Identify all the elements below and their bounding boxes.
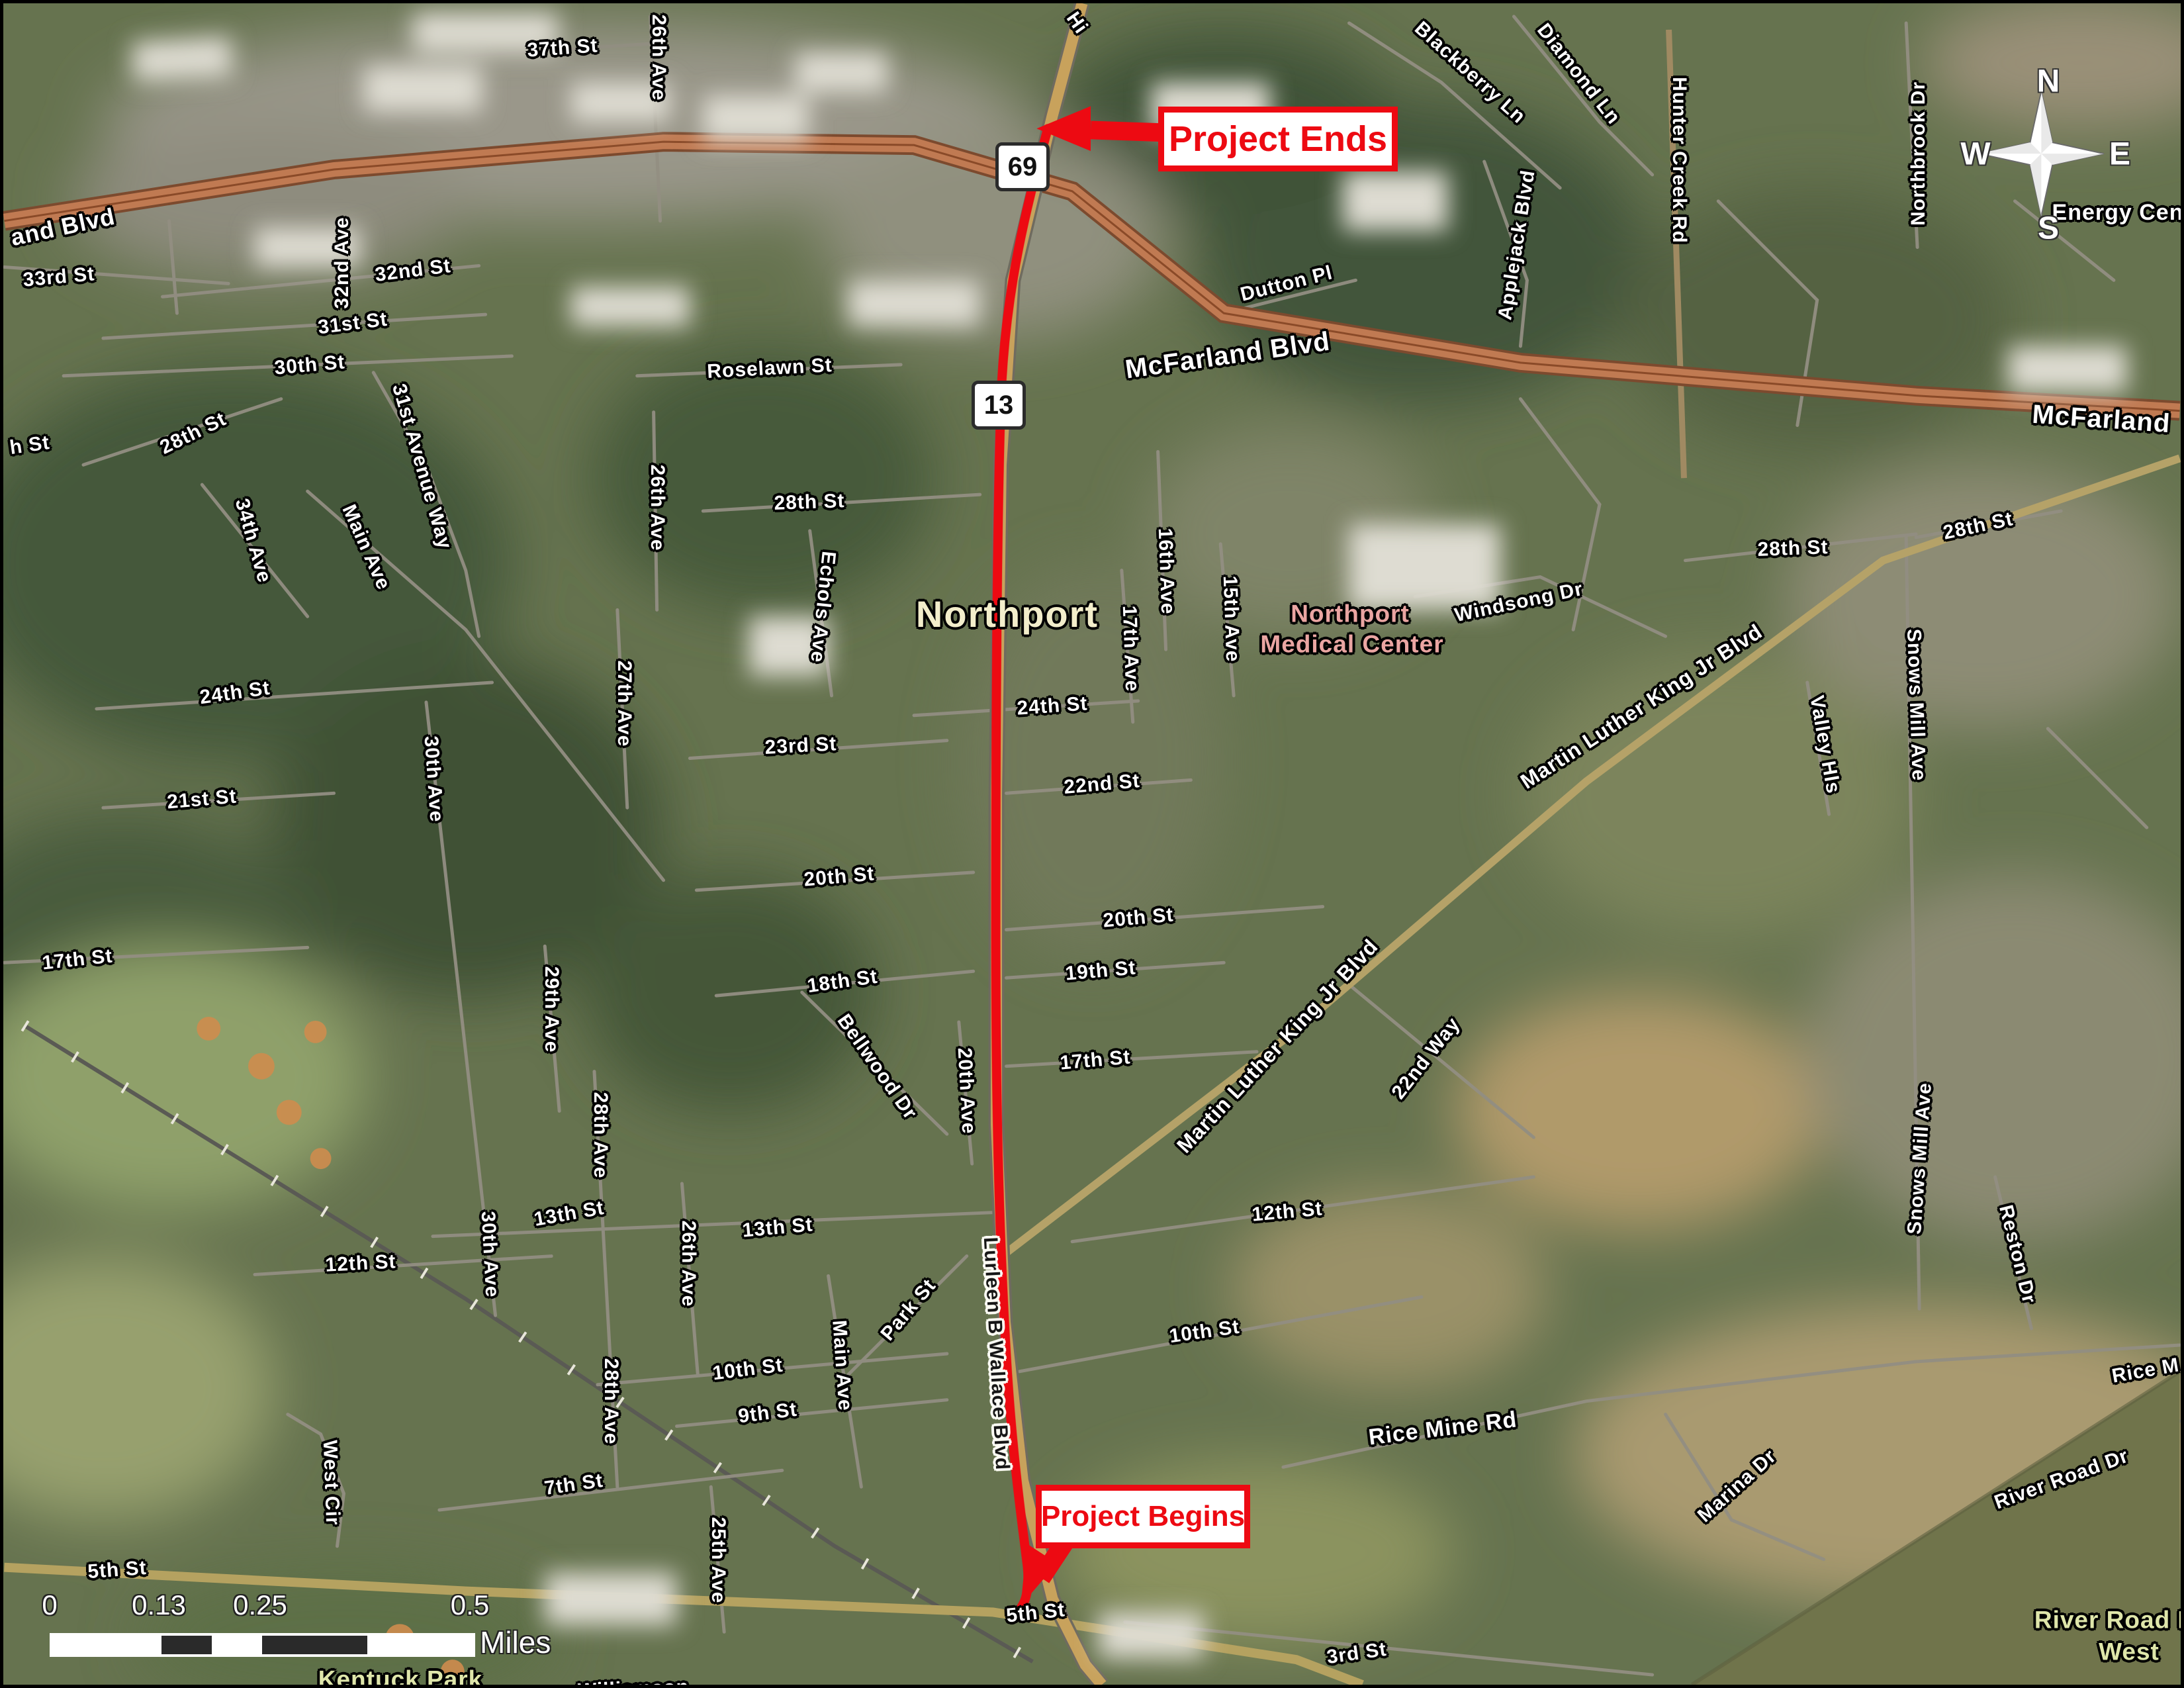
street-label-26th-ave-lower: 26th Ave xyxy=(678,1221,698,1307)
park-label-river-road-park-2: West xyxy=(2099,1640,2160,1664)
street-label-25th-ave: 25th Ave xyxy=(708,1517,728,1604)
street-label-snows-mill-ave-upper: Snows Mill Ave xyxy=(1903,628,1929,781)
street-label-15th-ave: 15th Ave xyxy=(1220,575,1243,663)
project-ends-callout: Project Ends xyxy=(1158,107,1398,171)
scale-tick-0: 0 xyxy=(42,1589,57,1621)
project-begins-callout: Project Begins xyxy=(1036,1485,1250,1548)
compass-east-label: E xyxy=(2109,136,2130,173)
street-label-24th-st-center: 24th St xyxy=(1017,694,1089,718)
street-label-30th-ave-upper: 30th Ave xyxy=(420,735,446,823)
street-label-27th-ave: 27th Ave xyxy=(614,661,634,747)
place-label-williamson-cut: Williamson xyxy=(577,1677,689,1688)
street-label-28th-ave-lower: 28th Ave xyxy=(601,1358,621,1445)
street-label-17th-ave: 17th Ave xyxy=(1119,605,1142,692)
satellite-basemap xyxy=(3,3,2181,1685)
street-label-20th-ave: 20th Ave xyxy=(954,1047,979,1135)
street-label-hunter-creek-rd: Hunter Creek Rd xyxy=(1669,77,1689,244)
street-label-30th-ave-lower: 30th Ave xyxy=(478,1211,502,1298)
scale-bar xyxy=(50,1633,475,1657)
scale-tick-0.25: 0.25 xyxy=(233,1589,287,1621)
street-label-37th-st: 37th St xyxy=(527,36,599,60)
project-begins-label: Project Begins xyxy=(1041,1500,1245,1533)
place-label-northport: Northport xyxy=(916,596,1099,633)
street-label-32nd-ave: 32nd Ave xyxy=(332,216,352,308)
street-label-26th-ave-mid: 26th Ave xyxy=(647,465,667,551)
map-viewport: 37th St26th Ave32nd Ave32nd St33rd St31s… xyxy=(0,0,2184,1688)
compass-west-label: W xyxy=(1960,136,1990,173)
poi-label-northport-medical-2: Medical Center xyxy=(1260,632,1443,657)
street-label-28th-st-center: 28th St xyxy=(774,491,845,514)
project-ends-label: Project Ends xyxy=(1169,118,1387,160)
compass-north-label: N xyxy=(2037,64,2060,100)
street-label-16th-ave: 16th Ave xyxy=(1155,528,1178,615)
street-label-28th-ave-upper: 28th Ave xyxy=(590,1092,610,1179)
street-label-5th-st-left: 5th St xyxy=(87,1558,147,1582)
park-label-river-road-park-1: River Road P xyxy=(2034,1608,2184,1632)
scale-unit-label: Miles xyxy=(480,1624,551,1660)
street-label-energy-center-cut: Energy Cen xyxy=(2052,201,2184,224)
street-label-23rd-st: 23rd St xyxy=(764,734,837,758)
street-label-28th-st-right: 28th St xyxy=(1757,538,1829,560)
street-label-west-cir: West Cir xyxy=(320,1440,342,1526)
poi-label-northport-medical-1: Northport xyxy=(1291,602,1410,626)
street-label-northbrook-dr: Northbrook Dr xyxy=(1909,81,1929,226)
street-label-26th-ave-top: 26th Ave xyxy=(649,15,668,101)
scale-tick-0.13: 0.13 xyxy=(132,1589,186,1621)
street-label-29th-ave: 29th Ave xyxy=(541,966,561,1053)
park-label-kentuck-park: Kentuck Park xyxy=(318,1667,483,1688)
compass-south-label: S xyxy=(2038,211,2059,247)
scale-tick-0.5: 0.5 xyxy=(451,1589,489,1621)
shield-13: 13 xyxy=(972,381,1026,430)
shield-69: 69 xyxy=(995,142,1050,191)
street-label-12th-st-left: 12th St xyxy=(325,1252,396,1276)
